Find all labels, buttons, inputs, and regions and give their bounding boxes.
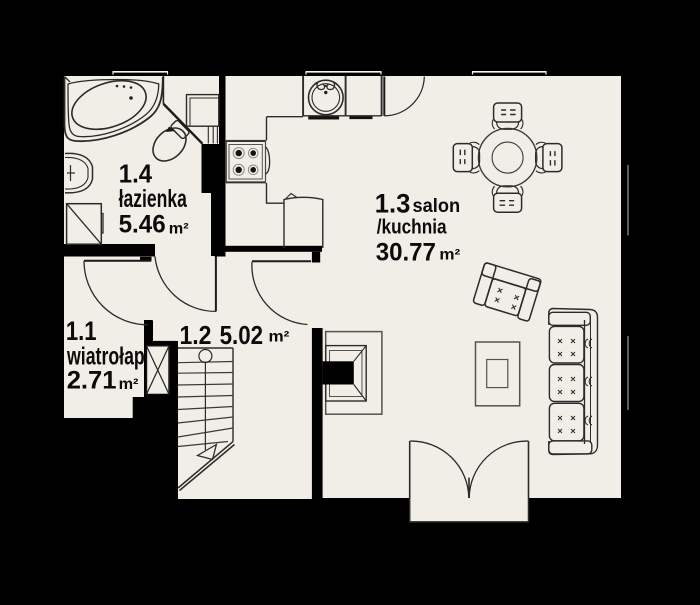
svg-text:30.77: 30.77	[376, 239, 436, 267]
svg-text:5.02: 5.02	[220, 322, 263, 351]
svg-text:m²: m²	[169, 221, 189, 238]
svg-text:m²: m²	[269, 328, 290, 345]
svg-text:1.2: 1.2	[180, 322, 212, 351]
svg-text:/kuchnia: /kuchnia	[377, 215, 447, 237]
svg-text:m²: m²	[439, 246, 460, 263]
svg-text:2.71: 2.71	[67, 367, 117, 395]
svg-text:5.46: 5.46	[119, 211, 166, 238]
svg-text:łazienka: łazienka	[119, 184, 188, 213]
svg-text:m²: m²	[119, 376, 139, 393]
svg-text:salon: salon	[413, 195, 461, 216]
svg-text:1.3: 1.3	[375, 188, 411, 219]
